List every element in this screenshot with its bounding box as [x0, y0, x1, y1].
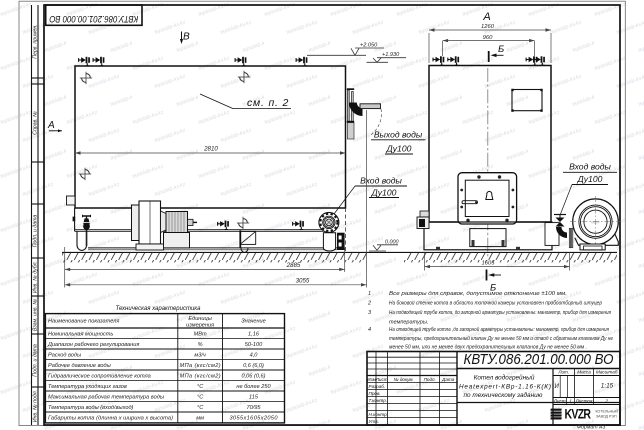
svg-text:мм: мм: [196, 416, 204, 422]
svg-text:по техническому заданию: по техническому заданию: [464, 391, 543, 399]
svg-text:Т.контр.: Т.контр.: [369, 398, 388, 403]
svg-text:Подп. и дата: Подп. и дата: [33, 215, 39, 248]
svg-text:Формат А3: Формат А3: [577, 425, 605, 430]
svg-text:2810: 2810: [203, 146, 218, 153]
svg-text:2: 2: [604, 399, 608, 404]
svg-text:3055: 3055: [296, 277, 310, 284]
svg-text:Ду100: Ду100: [371, 188, 397, 198]
svg-text:Масса: Масса: [577, 370, 591, 375]
svg-text:1:15: 1:15: [601, 383, 614, 390]
svg-text:0,6 (6,0): 0,6 (6,0): [243, 363, 264, 369]
svg-text:Расход воды: Расход воды: [48, 353, 81, 359]
svg-text:Взам. инв. №: Взам. инв. №: [33, 299, 39, 331]
svg-text:На подводящей трубе котла, д: На подводящей трубе котла, до запорной а…: [389, 309, 611, 316]
svg-text:Масштаб: Масштаб: [596, 370, 618, 375]
svg-text:1: 1: [368, 291, 371, 297]
svg-text:На боковой стенке котла в обла: На боковой стенке котла в области топочн…: [389, 300, 602, 307]
svg-text:Рабочее давление воды: Рабочее давление воды: [48, 363, 111, 369]
svg-text:KVZR: KVZR: [565, 407, 592, 422]
svg-text:Пров.: Пров.: [369, 391, 381, 396]
svg-text:Лит.: Лит.: [557, 370, 569, 375]
svg-text:ЗАВОД РЭП: ЗАВОД РЭП: [596, 414, 617, 418]
svg-text:Максимальная рабочая температу: Максимальная рабочая температура воды: [48, 395, 164, 401]
svg-text:Ду100: Ду100: [577, 174, 603, 184]
svg-text:температуры, предохранительный: температуры, предохранительный клапан Ду…: [389, 335, 613, 342]
svg-text:Котел водогрейный: Котел водогрейный: [474, 374, 535, 382]
svg-text:Листов: Листов: [575, 399, 593, 404]
svg-text:Инв. № подл.: Инв. № подл.: [33, 390, 39, 422]
svg-text:Справ. №: Справ. №: [33, 111, 39, 135]
svg-text:1605: 1605: [482, 260, 496, 266]
svg-text:4: 4: [368, 327, 371, 333]
svg-text:А: А: [47, 120, 55, 131]
svg-text:измерения: измерения: [186, 322, 214, 328]
svg-text:менее 50 мм, или не менее двух: менее 50 мм, или не менее двух предохран…: [389, 345, 587, 351]
svg-text:960: 960: [483, 35, 493, 41]
svg-text:КВТУ.086.201.00.000 ВО: КВТУ.086.201.00.000 ВО: [49, 13, 138, 24]
svg-text:+2.050: +2.050: [360, 43, 378, 49]
svg-text:Инв. № дубл.: Инв. № дубл.: [33, 261, 39, 293]
svg-text:%: %: [198, 342, 203, 348]
svg-text:Утв.: Утв.: [369, 419, 379, 424]
svg-text:4,0: 4,0: [250, 353, 259, 359]
svg-text:0,06 (0,6): 0,06 (0,6): [242, 374, 266, 380]
svg-text:КВЗР: КВЗР: [591, 221, 600, 225]
svg-text:115: 115: [249, 395, 259, 401]
svg-text:Диапазон рабочего регулировани: Диапазон рабочего регулирования: [47, 342, 139, 348]
svg-text:Техническая характеристика: Техническая характеристика: [116, 306, 202, 312]
svg-text:Перв. примен.: Перв. примен.: [33, 24, 39, 58]
svg-text:Номинальная мощность: Номинальная мощность: [48, 332, 113, 338]
svg-text:КОТЕЛЬНЫЙ: КОТЕЛЬНЫЙ: [596, 410, 619, 414]
svg-text:Н.контр.: Н.контр.: [369, 412, 388, 417]
svg-text:2885: 2885: [286, 262, 301, 269]
svg-text:На отводящей трубе котла ,до з: На отводящей трубе котла ,до запорной ар…: [389, 326, 609, 333]
svg-text:Подп.: Подп.: [424, 377, 436, 382]
svg-text:Температура воды (вход/выход): Температура воды (вход/выход): [48, 405, 134, 411]
svg-text:Разраб.: Разраб.: [369, 384, 386, 389]
svg-text:Гидравлическое сопротивление к: Гидравлическое сопротивление котла: [48, 374, 151, 380]
svg-text:Вход воды: Вход воды: [569, 162, 611, 172]
svg-text:не более 250: не более 250: [236, 384, 271, 390]
svg-text:0.000: 0.000: [385, 239, 399, 245]
svg-text:1260: 1260: [481, 24, 495, 30]
svg-text:Габариты котла (длинна х ширин: Габариты котла (длинна х ширина х высота…: [48, 416, 173, 422]
svg-text:МПа (кгс/см2): МПа (кгс/см2): [180, 363, 221, 369]
svg-text:Выход воды: Выход воды: [374, 130, 423, 140]
svg-text:Наименование показателя: Наименование показателя: [48, 319, 119, 325]
svg-text:50-100: 50-100: [245, 342, 263, 348]
svg-text:°С: °С: [197, 405, 204, 411]
svg-text:Лист: Лист: [553, 399, 566, 404]
svg-text:3055х1605х2050: 3055х1605х2050: [230, 416, 279, 422]
svg-text:м3/ч: м3/ч: [194, 353, 205, 359]
svg-text:Единицы: Единицы: [188, 316, 211, 322]
svg-text:1,16: 1,16: [248, 332, 260, 338]
svg-text:°С: °С: [197, 384, 204, 390]
svg-text:°С: °С: [197, 395, 204, 401]
svg-text:Все размеры для справок, допус: Все размеры для справок, допустимое откл…: [389, 291, 567, 297]
svg-text:А: А: [482, 11, 490, 23]
svg-text:2: 2: [367, 301, 371, 307]
svg-text:МПа (кгс/см2): МПа (кгс/см2): [180, 374, 221, 380]
svg-text:Heatexpert-КВр-1,16-К(К): Heatexpert-КВр-1,16-К(К): [459, 383, 551, 390]
svg-text:Б: Б: [498, 44, 504, 55]
svg-text:Температура уходящих газов: Температура уходящих газов: [48, 384, 127, 390]
svg-text:1: 1: [569, 399, 572, 404]
svg-text:температуры.: температуры.: [389, 319, 428, 325]
svg-text:см. п. 2: см. п. 2: [247, 97, 289, 109]
svg-text:Лист: Лист: [375, 377, 388, 382]
svg-text:Подп. и дата: Подп. и дата: [33, 344, 39, 377]
svg-text:Значение: Значение: [241, 319, 266, 325]
svg-text:И: И: [554, 384, 559, 390]
svg-text:КВТУ.086.201.00.000 ВО: КВТУ.086.201.00.000 ВО: [464, 352, 614, 368]
svg-text:Дата: Дата: [441, 377, 455, 382]
svg-text:70/95: 70/95: [247, 405, 262, 411]
svg-text:В: В: [183, 32, 190, 43]
svg-text:№ докум.: № докум.: [394, 377, 414, 382]
svg-text:Ду100: Ду100: [386, 144, 412, 154]
svg-text:+1.930: +1.930: [382, 52, 400, 58]
svg-text:МВт: МВт: [194, 332, 207, 338]
